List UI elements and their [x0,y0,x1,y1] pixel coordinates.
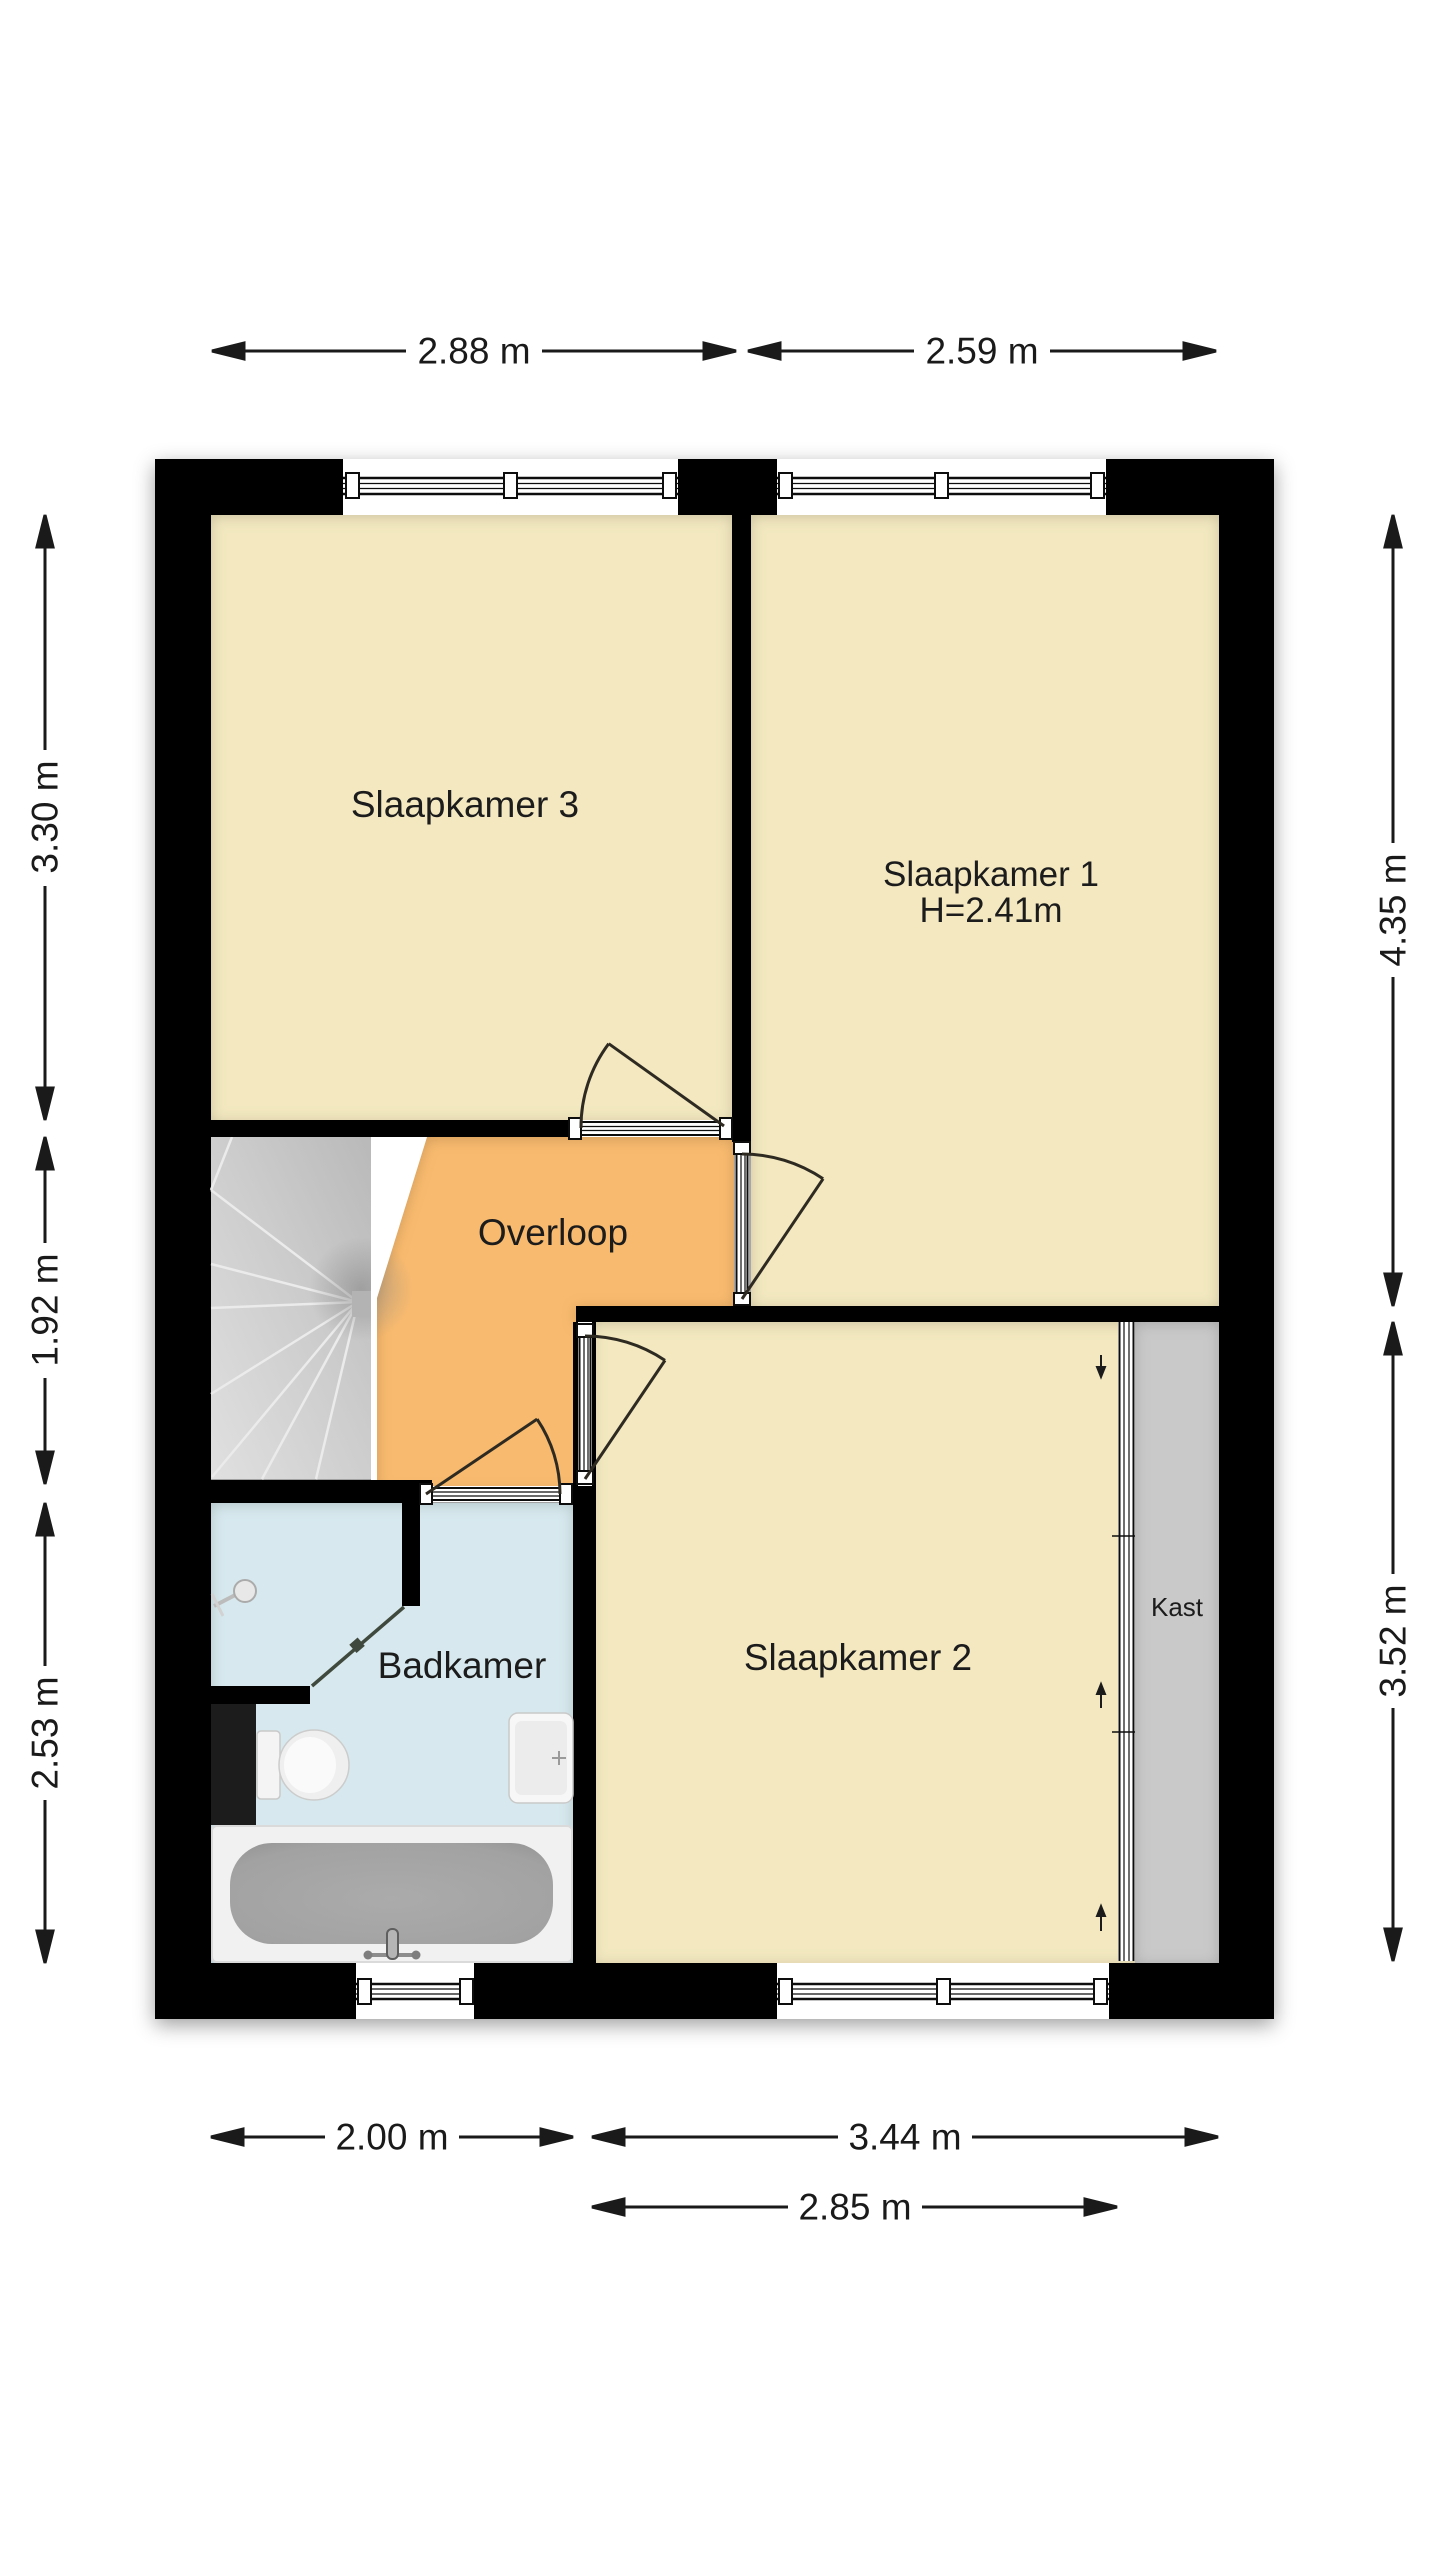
svg-text:3.30 m: 3.30 m [25,760,66,873]
svg-text:2.88 m: 2.88 m [417,331,530,372]
svg-text:2.53 m: 2.53 m [25,1676,66,1789]
svg-text:Kast: Kast [1151,1592,1204,1622]
svg-text:3.52 m: 3.52 m [1373,1584,1414,1697]
svg-text:2.00 m: 2.00 m [335,2117,448,2158]
svg-text:Slaapkamer 2: Slaapkamer 2 [744,1637,972,1678]
svg-text:1.92 m: 1.92 m [25,1253,66,1366]
svg-text:Slaapkamer 1: Slaapkamer 1 [883,855,1099,894]
svg-text:Badkamer: Badkamer [378,1645,547,1686]
svg-text:Overloop: Overloop [478,1212,628,1253]
svg-text:4.35 m: 4.35 m [1373,853,1414,966]
svg-text:3.44 m: 3.44 m [848,2117,961,2158]
svg-text:H=2.41m: H=2.41m [920,891,1063,930]
svg-text:Slaapkamer 3: Slaapkamer 3 [351,784,579,825]
svg-text:2.59 m: 2.59 m [925,331,1038,372]
svg-text:2.85 m: 2.85 m [798,2187,911,2228]
